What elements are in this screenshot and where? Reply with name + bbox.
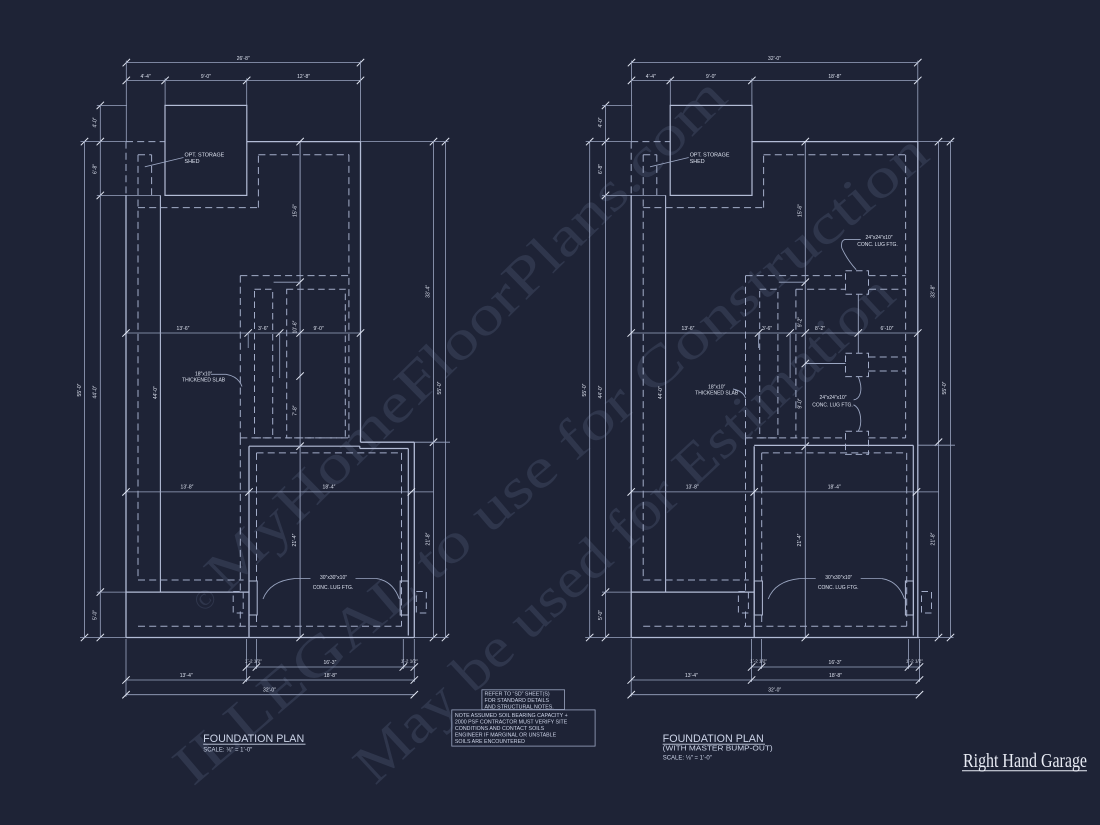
svg-text:12ʼ-8″: 12ʼ-8″ xyxy=(297,74,310,80)
svg-text:44ʼ-0″: 44ʼ-0″ xyxy=(598,385,604,398)
svg-text:18ʼ-4″: 18ʼ-4″ xyxy=(828,484,841,490)
svg-text:CONC. LUG FTG.: CONC. LUG FTG. xyxy=(857,242,898,248)
svg-text:CONC. LUG FTG.: CONC. LUG FTG. xyxy=(812,402,853,408)
svg-text:5ʼ-0″: 5ʼ-0″ xyxy=(93,610,99,620)
svg-text:6ʼ-8″: 6ʼ-8″ xyxy=(598,164,604,174)
svg-text:18ʼ-4″: 18ʼ-4″ xyxy=(323,484,336,490)
svg-text:3ʼ-6″: 3ʼ-6″ xyxy=(762,326,772,332)
svg-text:CONDITIONS AND CONTACT SOILS: CONDITIONS AND CONTACT SOILS xyxy=(455,726,545,732)
svg-text:55ʼ-0″: 55ʼ-0″ xyxy=(437,381,443,394)
svg-text:13ʼ-4″: 13ʼ-4″ xyxy=(180,673,193,679)
svg-text:REFER TO “SD” SHEET(S): REFER TO “SD” SHEET(S) xyxy=(485,692,550,698)
svg-text:21ʼ-4″: 21ʼ-4″ xyxy=(797,533,803,546)
svg-text:15ʼ-6″: 15ʼ-6″ xyxy=(798,204,804,217)
svg-text:24″x24″x10″: 24″x24″x10″ xyxy=(866,235,893,241)
svg-text:(WITH MASTER BUMP-OUT): (WITH MASTER BUMP-OUT) xyxy=(663,744,773,753)
svg-text:18ʼ-8″: 18ʼ-8″ xyxy=(829,673,842,679)
svg-text:16ʼ-3″: 16ʼ-3″ xyxy=(323,660,336,666)
svg-text:FOUNDATION PLAN: FOUNDATION PLAN xyxy=(203,733,304,745)
svg-text:SHED: SHED xyxy=(185,159,200,165)
svg-text:4ʼ-0″: 4ʼ-0″ xyxy=(598,117,604,127)
svg-text:44ʼ-0″: 44ʼ-0″ xyxy=(93,385,99,398)
svg-text:26ʼ-8″: 26ʼ-8″ xyxy=(237,56,250,62)
svg-text:24″x24″x10″: 24″x24″x10″ xyxy=(820,395,847,401)
svg-text:4ʼ-4″: 4ʼ-4″ xyxy=(646,74,656,80)
svg-text:55ʼ-0″: 55ʼ-0″ xyxy=(942,381,948,394)
svg-text:44ʼ-0″: 44ʼ-0″ xyxy=(153,386,159,399)
svg-text:1ʼ-2 1/2″: 1ʼ-2 1/2″ xyxy=(401,659,418,664)
svg-text:SCALE: ⅛″ = 1ʼ-0″: SCALE: ⅛″ = 1ʼ-0″ xyxy=(203,748,253,754)
svg-text:2000 PSF CONTRACTOR MUST VERIF: 2000 PSF CONTRACTOR MUST VERIFY SITE xyxy=(455,720,568,726)
svg-text:13ʼ-8″: 13ʼ-8″ xyxy=(686,484,699,490)
svg-text:55ʼ-0″: 55ʼ-0″ xyxy=(582,383,588,396)
svg-text:32ʼ-0″: 32ʼ-0″ xyxy=(263,688,276,694)
svg-text:7ʼ-8″: 7ʼ-8″ xyxy=(292,405,298,415)
svg-text:CONC. LUG FTG.: CONC. LUG FTG. xyxy=(313,585,354,591)
svg-text:18″x10″: 18″x10″ xyxy=(195,371,212,377)
svg-text:18ʼ-8″: 18ʼ-8″ xyxy=(828,74,841,80)
svg-text:9ʼ-0″: 9ʼ-0″ xyxy=(314,326,324,332)
svg-text:32ʼ-0″: 32ʼ-0″ xyxy=(768,688,781,694)
svg-text:SOILS ARE ENCOUNTERED: SOILS ARE ENCOUNTERED xyxy=(455,739,525,745)
svg-text:4ʼ-0″: 4ʼ-0″ xyxy=(93,117,99,127)
svg-text:15ʼ-6″: 15ʼ-6″ xyxy=(292,204,298,217)
svg-text:OPT. STORAGE: OPT. STORAGE xyxy=(185,153,225,159)
svg-text:30″x30″x10″: 30″x30″x10″ xyxy=(320,575,347,581)
svg-text:13ʼ-4″: 13ʼ-4″ xyxy=(685,673,698,679)
svg-text:CONC. LUG FTG.: CONC. LUG FTG. xyxy=(818,585,859,591)
svg-text:10ʼ-6″: 10ʼ-6″ xyxy=(292,320,298,333)
svg-text:5ʼ-0″: 5ʼ-0″ xyxy=(598,610,604,620)
svg-text:21ʼ-4″: 21ʼ-4″ xyxy=(292,533,298,546)
svg-text:1ʼ-2 1/2″: 1ʼ-2 1/2″ xyxy=(245,659,262,664)
svg-text:OPT. STORAGE: OPT. STORAGE xyxy=(690,153,730,159)
svg-text:13ʼ-8″: 13ʼ-8″ xyxy=(181,484,194,490)
svg-text:55ʼ-0″: 55ʼ-0″ xyxy=(77,383,83,396)
svg-text:THICKENED SLAB: THICKENED SLAB xyxy=(182,378,226,384)
svg-text:1ʼ-2 1/2″: 1ʼ-2 1/2″ xyxy=(750,659,767,664)
svg-text:18″x10″: 18″x10″ xyxy=(708,384,725,390)
svg-text:30″x30″x10″: 30″x30″x10″ xyxy=(825,575,852,581)
svg-text:13ʼ-6″: 13ʼ-6″ xyxy=(682,326,695,332)
svg-text:FOR STANDARD DETAILS: FOR STANDARD DETAILS xyxy=(485,698,550,704)
svg-text:21ʼ-8″: 21ʼ-8″ xyxy=(426,532,432,545)
svg-text:1ʼ-2 1/2″: 1ʼ-2 1/2″ xyxy=(906,659,923,664)
svg-text:NOTE ASSUMED SOIL BEARING CAPA: NOTE ASSUMED SOIL BEARING CAPACITY + xyxy=(455,713,568,719)
svg-text:33ʼ-4″: 33ʼ-4″ xyxy=(426,285,432,298)
svg-text:9ʼ-0″: 9ʼ-0″ xyxy=(706,74,716,80)
svg-text:THICKENED SLAB: THICKENED SLAB xyxy=(695,391,739,397)
svg-text:3ʼ-6″: 3ʼ-6″ xyxy=(258,326,268,332)
svg-text:4ʼ-4″: 4ʼ-4″ xyxy=(141,74,151,80)
svg-text:44ʼ-0″: 44ʼ-0″ xyxy=(658,386,664,399)
svg-text:6ʼ-8″: 6ʼ-8″ xyxy=(93,164,99,174)
svg-text:33ʼ-8″: 33ʼ-8″ xyxy=(931,285,937,298)
svg-text:32ʼ-0″: 32ʼ-0″ xyxy=(768,56,781,62)
svg-text:SHED: SHED xyxy=(690,159,705,165)
svg-text:9ʼ-0″: 9ʼ-0″ xyxy=(798,398,804,408)
svg-text:18ʼ-8″: 18ʼ-8″ xyxy=(324,673,337,679)
svg-text:9ʼ-2″: 9ʼ-2″ xyxy=(798,317,804,327)
svg-text:13ʼ-6″: 13ʼ-6″ xyxy=(177,326,190,332)
svg-text:ENGINEER IF MARGINAL OR UNSTAB: ENGINEER IF MARGINAL OR UNSTABLE xyxy=(455,733,557,739)
svg-text:8ʼ-2″: 8ʼ-2″ xyxy=(815,326,825,332)
svg-text:16ʼ-3″: 16ʼ-3″ xyxy=(829,660,842,666)
svg-text:6ʼ-10″: 6ʼ-10″ xyxy=(881,326,894,332)
svg-text:SCALE: ⅛″ = 1ʼ-0″: SCALE: ⅛″ = 1ʼ-0″ xyxy=(663,755,713,761)
svg-text:9ʼ-0″: 9ʼ-0″ xyxy=(201,74,211,80)
svg-text:21ʼ-8″: 21ʼ-8″ xyxy=(931,532,937,545)
svg-text:Right Hand Garage: Right Hand Garage xyxy=(963,751,1087,772)
